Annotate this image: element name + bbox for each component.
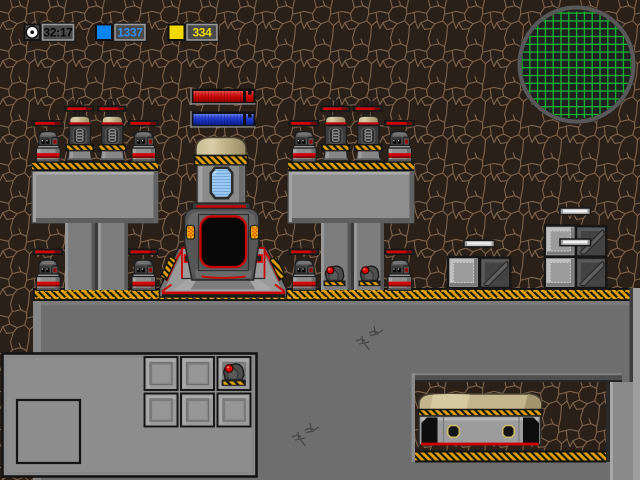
svg-text:1337: 1337 (117, 26, 143, 40)
svg-text:334: 334 (192, 26, 212, 40)
svg-text:32:17: 32:17 (43, 26, 73, 40)
